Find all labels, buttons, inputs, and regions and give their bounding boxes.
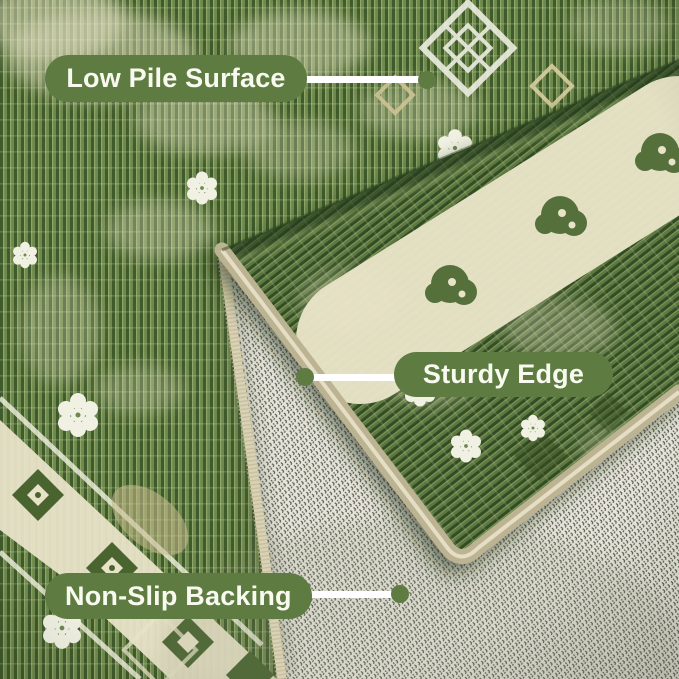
callout-dot-icon xyxy=(391,585,409,603)
product-image: Low Pile Surface Sturdy Edge Non-Slip Ba… xyxy=(0,0,679,679)
callout-connector-line xyxy=(308,374,398,381)
callout-connector-line xyxy=(298,591,395,598)
callout-label-low-pile-surface: Low Pile Surface xyxy=(45,55,307,102)
callout-label-non-slip-backing: Non-Slip Backing xyxy=(45,573,312,619)
callout-dot-icon xyxy=(296,368,314,386)
callout-connector-line xyxy=(300,76,422,83)
callout-label-sturdy-edge: Sturdy Edge xyxy=(394,352,613,397)
callout-dot-icon xyxy=(418,71,436,89)
